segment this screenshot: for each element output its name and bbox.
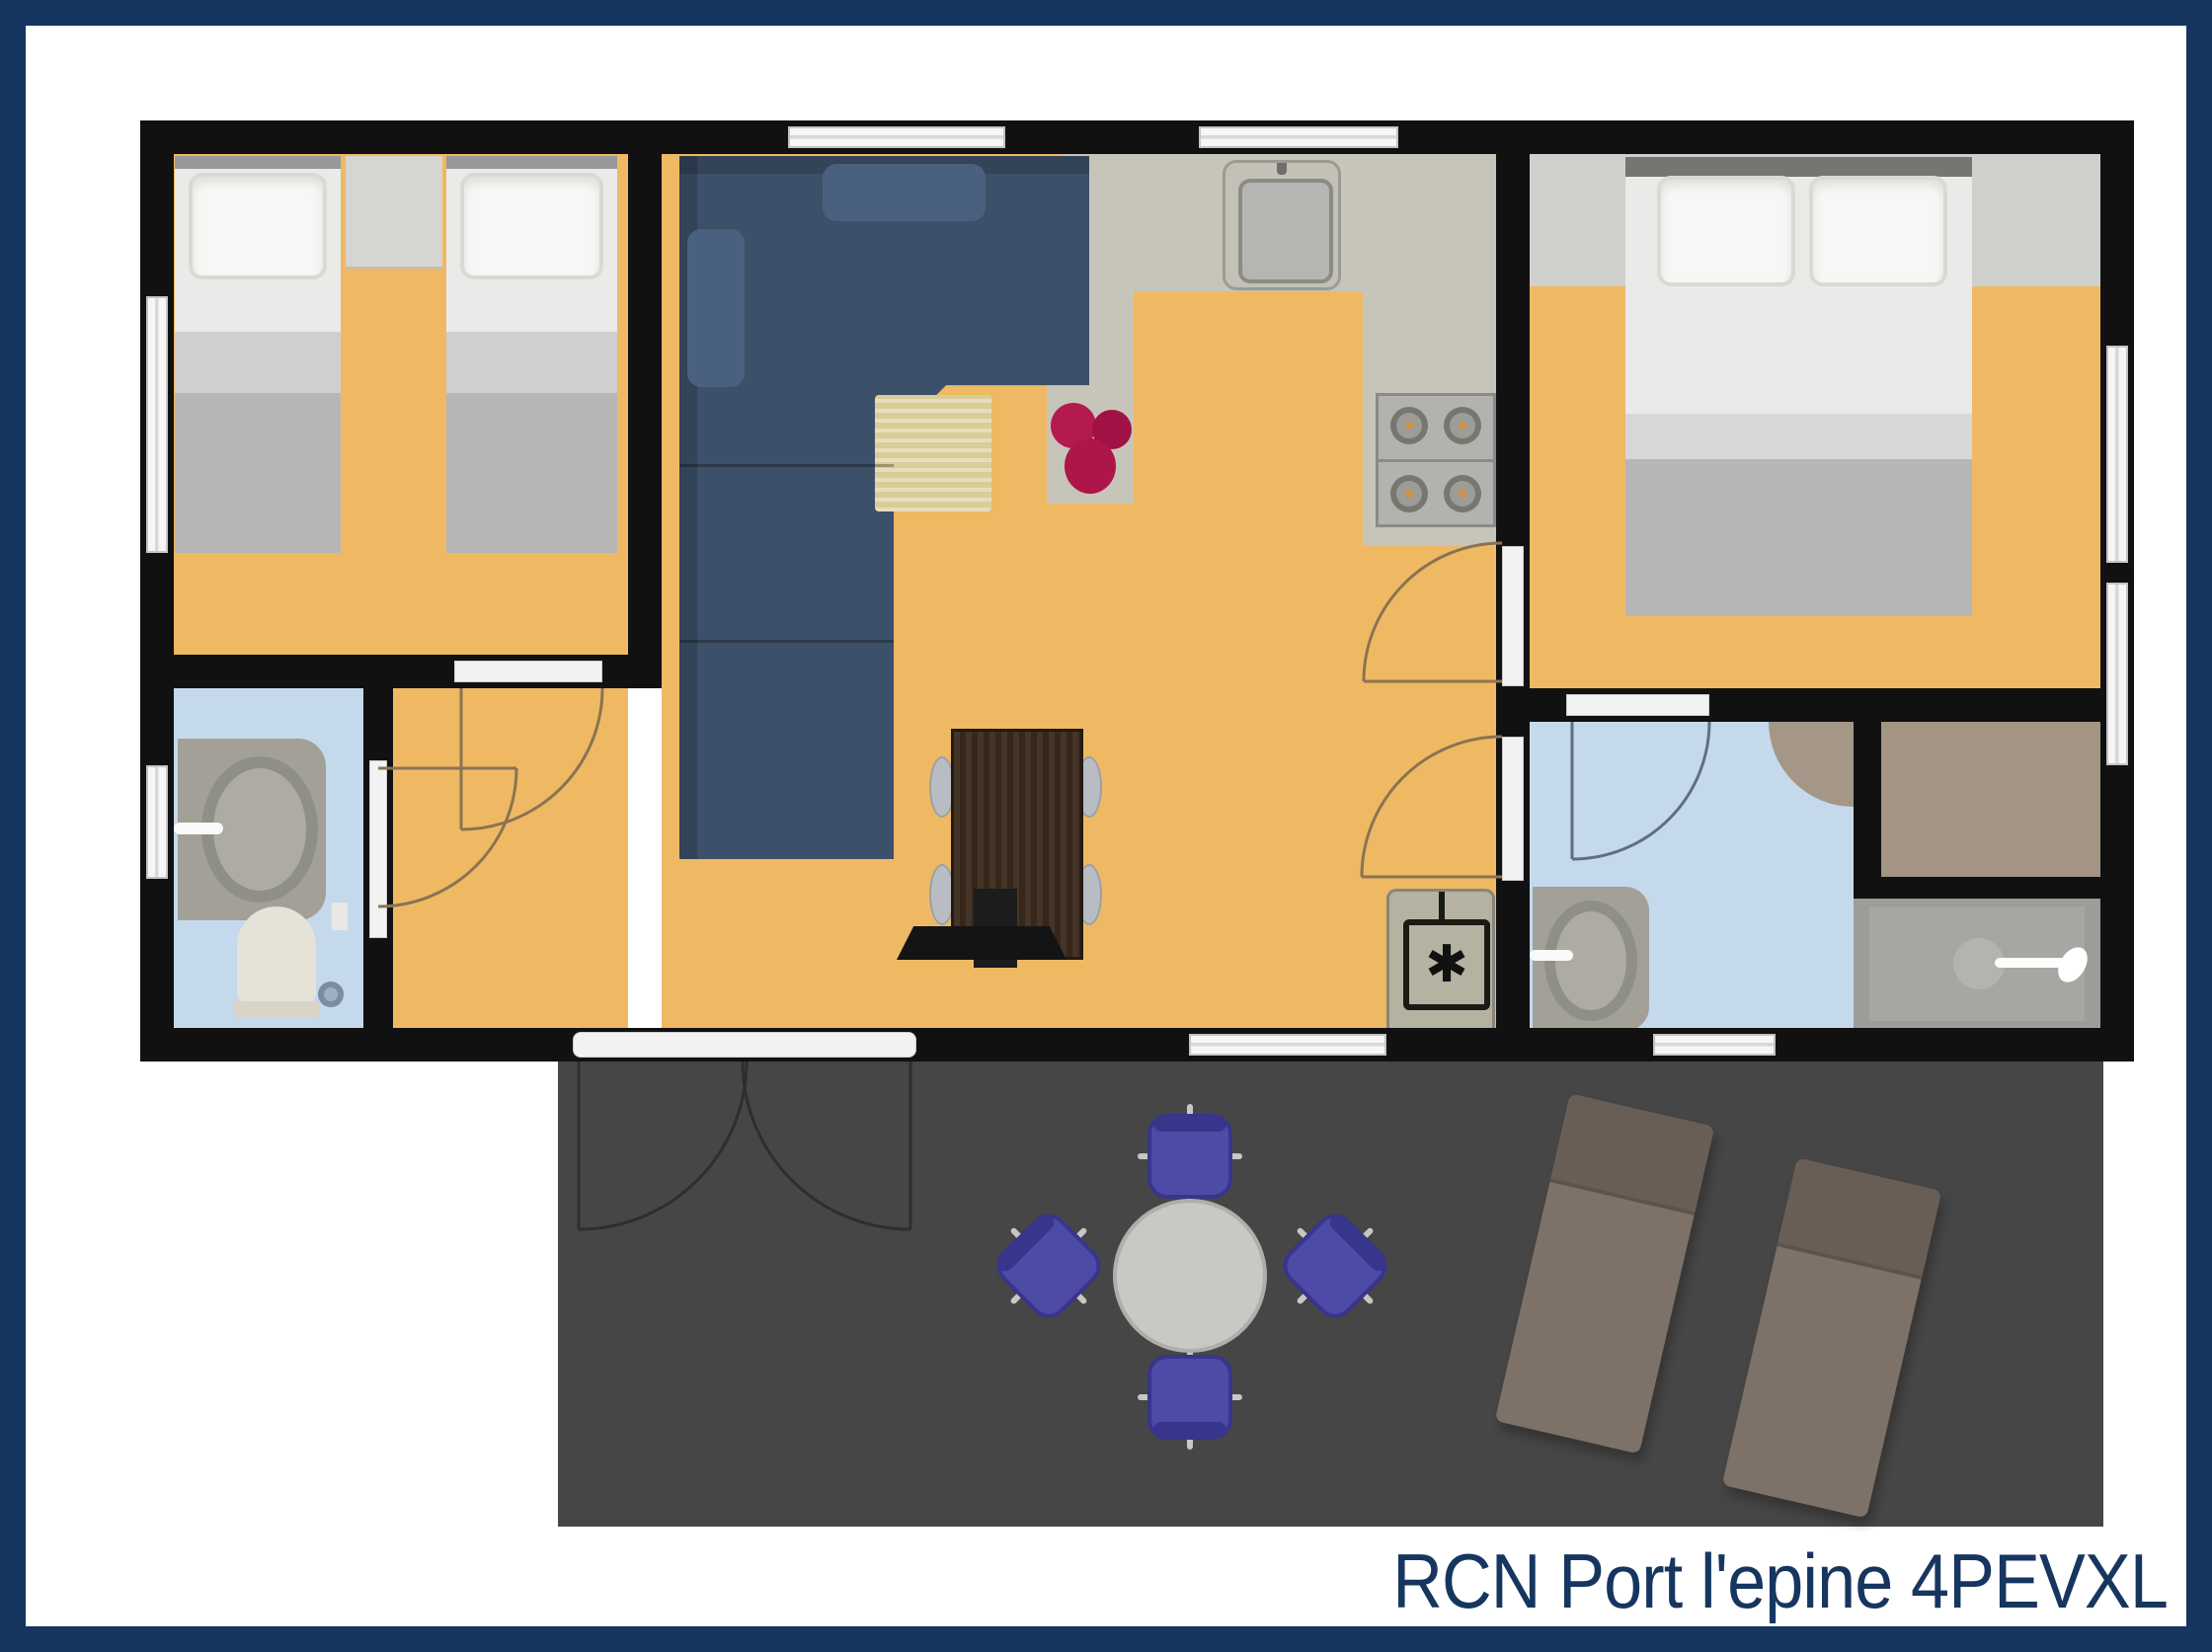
sofa-cushion xyxy=(687,229,745,387)
faucet-icon xyxy=(1277,163,1287,175)
boiler-cabinet: ✱ xyxy=(1386,889,1495,1028)
burner-icon xyxy=(1390,407,1428,444)
bed-sheet-fold xyxy=(446,332,617,393)
kitchen-sink xyxy=(1223,160,1341,290)
sofa-seam xyxy=(679,464,894,467)
tv-screen xyxy=(897,926,1066,960)
sink-basin-icon xyxy=(1238,179,1333,283)
sofa-seam xyxy=(679,640,894,643)
sofa-cushion xyxy=(823,164,986,221)
boiler-unit-icon: ✱ xyxy=(1403,919,1490,1010)
door-opening-bathroom2-hall xyxy=(1502,737,1524,881)
window-kitchen-top xyxy=(1199,126,1398,148)
toilet-icon xyxy=(237,906,316,1003)
bedroom2-wardrobe-floor xyxy=(1881,722,2100,877)
window-bedroom2-right-lower xyxy=(2106,583,2128,765)
door-opening-bathroom1 xyxy=(369,760,387,938)
rug xyxy=(875,395,991,511)
pillow-icon xyxy=(1809,176,1947,286)
stove-split xyxy=(1379,459,1493,462)
toilet-base xyxy=(233,1001,320,1017)
faucet-icon xyxy=(1530,950,1573,961)
burner-icon xyxy=(1444,407,1481,444)
burner-icon xyxy=(1390,475,1428,512)
chair-back xyxy=(1153,1116,1226,1132)
pillow-icon xyxy=(1657,176,1795,286)
pillow-icon xyxy=(460,173,603,279)
terrace-chair xyxy=(1147,1355,1232,1440)
hall-nook-floor xyxy=(393,688,628,1028)
stove xyxy=(1376,393,1496,527)
french-door-opening xyxy=(573,1032,916,1058)
boiler-pipe-icon xyxy=(1439,892,1445,921)
wall-bottom xyxy=(140,1028,2134,1062)
terrace-table xyxy=(1113,1199,1267,1353)
wall-top xyxy=(140,120,2134,154)
flower-decor-icon xyxy=(1065,438,1116,494)
nightstand xyxy=(346,156,442,269)
drain-icon xyxy=(318,982,344,1007)
boiler-symbol: ✱ xyxy=(1425,939,1468,990)
window-living-bottom xyxy=(1189,1034,1386,1056)
window-bathroom1-left xyxy=(146,765,168,879)
door-opening-bedroom1 xyxy=(454,661,602,682)
door-opening-bedroom2 xyxy=(1502,546,1524,686)
terrace-chair xyxy=(1147,1114,1232,1199)
faucet-icon xyxy=(174,823,223,834)
bed-sheet-fold xyxy=(175,332,341,393)
page-title: RCN Port l'epine 4PEVXL xyxy=(1392,1536,2168,1626)
dining-table xyxy=(951,729,1083,960)
window-bedroom2-right-upper xyxy=(2106,346,2128,563)
wall-wardrobe-stub xyxy=(1854,722,1881,894)
door-handle-icon xyxy=(332,903,348,930)
pillow-icon xyxy=(189,173,327,279)
burner-icon xyxy=(1444,475,1481,512)
sink-icon xyxy=(1544,901,1637,1021)
bed-headboard xyxy=(1625,157,1972,177)
wall-bedroom1-right xyxy=(628,120,662,688)
bed-headboard xyxy=(446,156,617,169)
window-bathroom2-bottom xyxy=(1653,1034,1776,1056)
chair-back xyxy=(1153,1422,1226,1438)
door-opening-bathroom2-bedroom xyxy=(1566,694,1709,716)
wall-left xyxy=(140,120,174,1062)
window-bedroom1-left xyxy=(146,296,168,553)
floor-plan-page: ✱ xyxy=(0,0,2212,1652)
wall-wardrobe-bottom xyxy=(1854,877,2100,899)
bed-sheet-fold xyxy=(1625,414,1972,459)
window-living-top xyxy=(788,126,1005,148)
bed-headboard xyxy=(175,156,341,169)
